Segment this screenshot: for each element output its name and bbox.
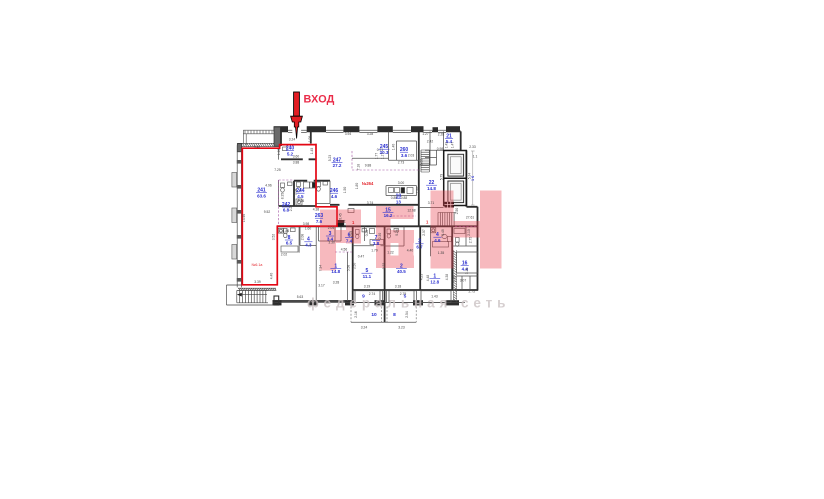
- svg-text:3.04: 3.04: [294, 189, 298, 196]
- svg-text:0.98: 0.98: [437, 147, 444, 151]
- svg-text:1 6: 1 6: [471, 176, 475, 181]
- svg-text:14.8: 14.8: [427, 186, 436, 191]
- svg-text:7.25: 7.25: [274, 168, 281, 172]
- svg-text:1.45: 1.45: [310, 148, 314, 155]
- svg-text:2.02: 2.02: [281, 253, 288, 257]
- svg-text:2.07: 2.07: [422, 229, 426, 236]
- svg-text:1.35: 1.35: [438, 251, 445, 255]
- svg-text:1.1: 1.1: [473, 155, 478, 159]
- svg-text:2.30: 2.30: [378, 233, 382, 240]
- svg-text:1.60: 1.60: [305, 227, 312, 231]
- svg-text:3.00: 3.00: [398, 181, 405, 185]
- svg-text:4.6: 4.6: [331, 194, 338, 199]
- svg-text:1.80: 1.80: [416, 187, 420, 194]
- svg-text:3.60: 3.60: [293, 155, 300, 159]
- svg-text:1.86: 1.86: [283, 229, 290, 233]
- svg-text:13: 13: [396, 199, 402, 204]
- svg-text:5.34: 5.34: [468, 173, 472, 180]
- svg-text:3.6: 3.6: [401, 153, 408, 158]
- svg-text:1.08: 1.08: [308, 136, 312, 143]
- svg-text:1.79: 1.79: [371, 248, 378, 252]
- svg-text:3.17: 3.17: [318, 284, 325, 288]
- svg-text:5.40: 5.40: [254, 145, 261, 149]
- svg-text:2.75: 2.75: [469, 237, 473, 244]
- svg-text:2.04: 2.04: [328, 226, 335, 230]
- svg-text:8.35: 8.35: [281, 193, 285, 200]
- svg-text:4.38: 4.38: [313, 208, 320, 212]
- svg-text:№264: №264: [362, 181, 374, 186]
- svg-text:4.40: 4.40: [270, 273, 274, 280]
- svg-text:2.28: 2.28: [438, 133, 445, 137]
- svg-text:2.54: 2.54: [405, 311, 409, 318]
- svg-text:1.74: 1.74: [343, 220, 347, 227]
- svg-text:4.3: 4.3: [305, 243, 312, 248]
- svg-text:4.56: 4.56: [341, 248, 348, 252]
- svg-text:2.27: 2.27: [289, 205, 293, 212]
- svg-text:1.43: 1.43: [431, 294, 438, 298]
- svg-text:4.40: 4.40: [407, 249, 414, 253]
- svg-text:2.74: 2.74: [369, 292, 376, 296]
- svg-text:3.8: 3.8: [373, 241, 380, 246]
- svg-text:27.61: 27.61: [466, 216, 474, 220]
- svg-text:ВХОД: ВХОД: [304, 94, 335, 106]
- svg-text:7.94: 7.94: [319, 265, 323, 272]
- svg-text:4.6: 4.6: [434, 238, 441, 243]
- svg-text:3.74: 3.74: [367, 201, 374, 205]
- svg-text:0.26: 0.26: [395, 229, 399, 236]
- svg-text:1.17: 1.17: [381, 153, 385, 160]
- svg-text:3.07: 3.07: [460, 279, 467, 283]
- svg-text:3.71: 3.71: [428, 201, 435, 205]
- svg-text:6.5: 6.5: [286, 241, 293, 246]
- svg-text:3.98: 3.98: [303, 222, 310, 226]
- svg-text:63.6: 63.6: [257, 193, 266, 198]
- svg-text:3.28: 3.28: [367, 132, 374, 136]
- svg-text:3.23: 3.23: [398, 326, 405, 330]
- svg-text:1.40: 1.40: [392, 144, 396, 151]
- svg-text:1.80: 1.80: [355, 183, 359, 190]
- svg-text:2.79: 2.79: [400, 292, 407, 296]
- svg-text:3.24: 3.24: [361, 326, 368, 330]
- svg-text:3.24: 3.24: [289, 138, 296, 142]
- svg-text:3.39: 3.39: [254, 280, 261, 284]
- svg-text:3.52: 3.52: [271, 234, 275, 241]
- svg-text:2.08: 2.08: [300, 234, 304, 241]
- svg-text:3.30: 3.30: [328, 241, 335, 245]
- svg-text:9.32: 9.32: [382, 263, 386, 270]
- svg-text:2.50: 2.50: [455, 208, 459, 215]
- svg-text:2.16: 2.16: [354, 311, 358, 318]
- svg-text:2.03: 2.03: [408, 154, 415, 158]
- svg-text:6.7: 6.7: [416, 245, 423, 250]
- svg-text:1: 1: [426, 220, 429, 225]
- svg-text:4.48: 4.48: [426, 275, 430, 282]
- svg-text:1.50: 1.50: [343, 187, 347, 194]
- svg-text:5.63: 5.63: [297, 295, 304, 299]
- svg-text:1.16: 1.16: [277, 149, 281, 156]
- svg-text:2.10: 2.10: [467, 229, 471, 236]
- svg-text:2.16: 2.16: [298, 199, 305, 203]
- svg-text:13.90: 13.90: [242, 214, 246, 222]
- svg-text:1.47: 1.47: [451, 142, 455, 149]
- svg-text:11.1: 11.1: [363, 274, 372, 279]
- svg-text:1.42: 1.42: [452, 276, 456, 283]
- svg-text:0.28: 0.28: [365, 230, 369, 237]
- svg-text:3.19: 3.19: [364, 285, 371, 289]
- svg-text:4.96: 4.96: [265, 184, 272, 188]
- svg-text:0.45: 0.45: [339, 213, 343, 220]
- svg-text:2.73: 2.73: [398, 161, 405, 165]
- svg-text:0.49: 0.49: [441, 229, 445, 236]
- svg-text:9.52: 9.52: [264, 210, 271, 214]
- svg-text:1.22: 1.22: [387, 251, 394, 255]
- svg-text:3.16: 3.16: [465, 268, 469, 275]
- svg-text:3.05: 3.05: [419, 159, 423, 166]
- svg-text:0.71: 0.71: [377, 148, 384, 152]
- svg-text:4.23: 4.23: [419, 274, 423, 281]
- svg-text:27.2: 27.2: [333, 163, 342, 168]
- svg-text:3.28: 3.28: [333, 281, 340, 285]
- svg-text:12.68: 12.68: [407, 209, 415, 213]
- svg-text:1.27: 1.27: [422, 132, 429, 136]
- svg-text:0.47: 0.47: [358, 255, 365, 259]
- svg-text:7.4: 7.4: [346, 238, 353, 243]
- svg-text:0.89: 0.89: [391, 196, 398, 200]
- svg-text:40.5: 40.5: [397, 269, 406, 274]
- svg-text:4.38: 4.38: [445, 274, 449, 281]
- svg-text:8: 8: [393, 312, 396, 318]
- svg-text:7.6: 7.6: [316, 219, 323, 224]
- svg-text:7.18: 7.18: [357, 164, 361, 171]
- svg-text:2.42: 2.42: [427, 140, 434, 144]
- svg-text:9: 9: [362, 294, 365, 300]
- svg-text:5.58: 5.58: [347, 265, 351, 272]
- svg-text:3.88: 3.88: [293, 161, 300, 165]
- svg-text:0.88: 0.88: [401, 196, 408, 200]
- svg-text:федеральная сеть: федеральная сеть: [307, 296, 510, 311]
- svg-text:3.94: 3.94: [345, 132, 352, 136]
- svg-text:2.75: 2.75: [468, 290, 475, 294]
- svg-text:2.03: 2.03: [349, 231, 353, 238]
- svg-text:1.77: 1.77: [375, 153, 379, 160]
- svg-text:№6.1а: №6.1а: [252, 263, 263, 267]
- svg-text:12.8: 12.8: [430, 279, 439, 284]
- svg-text:3.18: 3.18: [395, 285, 402, 289]
- svg-text:5.23: 5.23: [328, 155, 332, 162]
- svg-text:1.43: 1.43: [445, 142, 449, 149]
- svg-text:2.33: 2.33: [469, 145, 476, 149]
- svg-text:5.79: 5.79: [439, 174, 443, 181]
- svg-text:9.88: 9.88: [365, 164, 372, 168]
- svg-text:16.2: 16.2: [384, 213, 393, 218]
- svg-text:14.8: 14.8: [331, 269, 340, 274]
- svg-text:3.50: 3.50: [353, 263, 357, 270]
- svg-text:10: 10: [371, 312, 377, 318]
